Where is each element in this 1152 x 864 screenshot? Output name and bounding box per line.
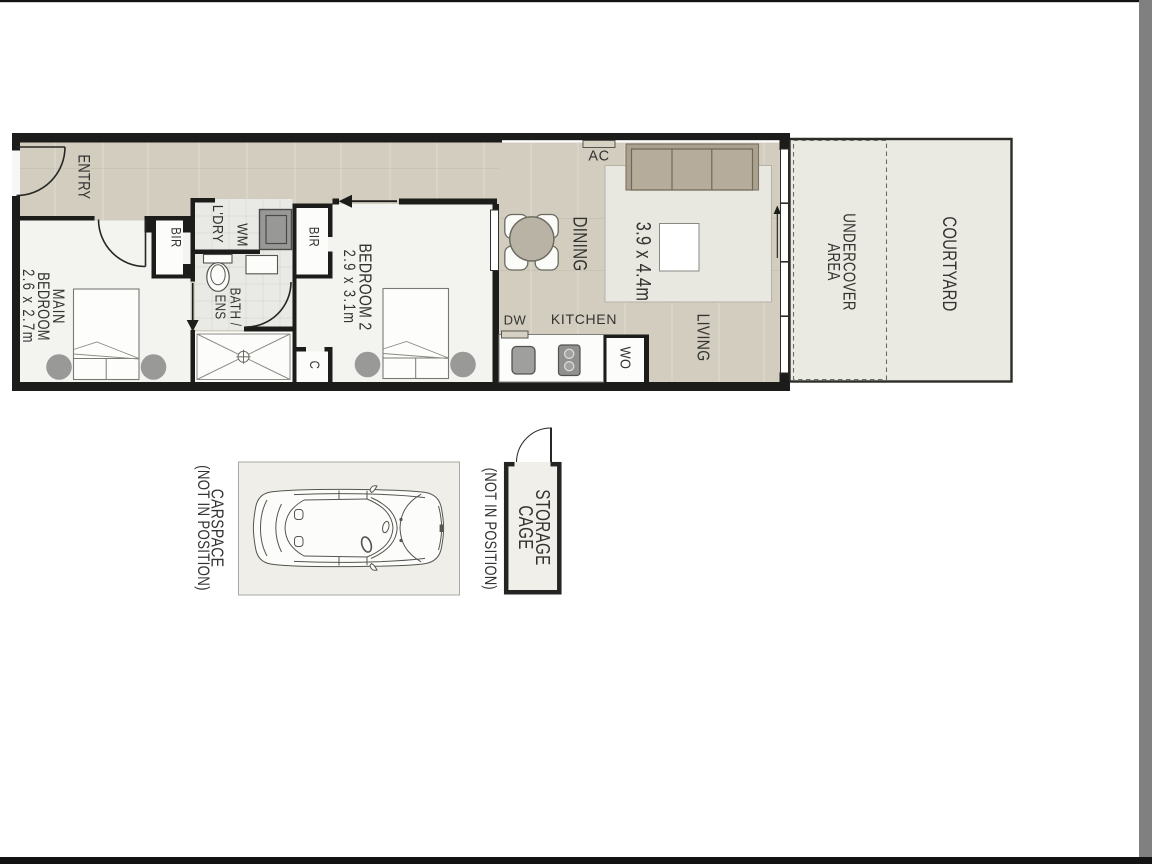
svg-text:KITCHEN: KITCHEN [551, 311, 617, 327]
svg-text:LIVING: LIVING [693, 314, 713, 362]
svg-text:COURTYARD: COURTYARD [939, 216, 960, 311]
svg-text:WO: WO [617, 347, 634, 370]
svg-text:AC: AC [588, 149, 609, 165]
svg-text:WM: WM [234, 223, 251, 246]
svg-text:BEDROOM 22.9 x 3.1m: BEDROOM 22.9 x 3.1m [340, 244, 376, 331]
svg-text:L'DRY: L'DRY [210, 205, 227, 243]
svg-text:ENTRY: ENTRY [74, 155, 92, 200]
svg-text:BIR: BIR [306, 227, 321, 247]
svg-text:(NOT IN POSITION): (NOT IN POSITION) [481, 468, 499, 590]
svg-text:DINING: DINING [569, 216, 591, 271]
svg-text:3.9 x 4.4m: 3.9 x 4.4m [632, 222, 655, 302]
svg-text:BIR: BIR [168, 227, 183, 247]
svg-text:C: C [307, 361, 322, 370]
svg-text:DW: DW [504, 313, 527, 328]
